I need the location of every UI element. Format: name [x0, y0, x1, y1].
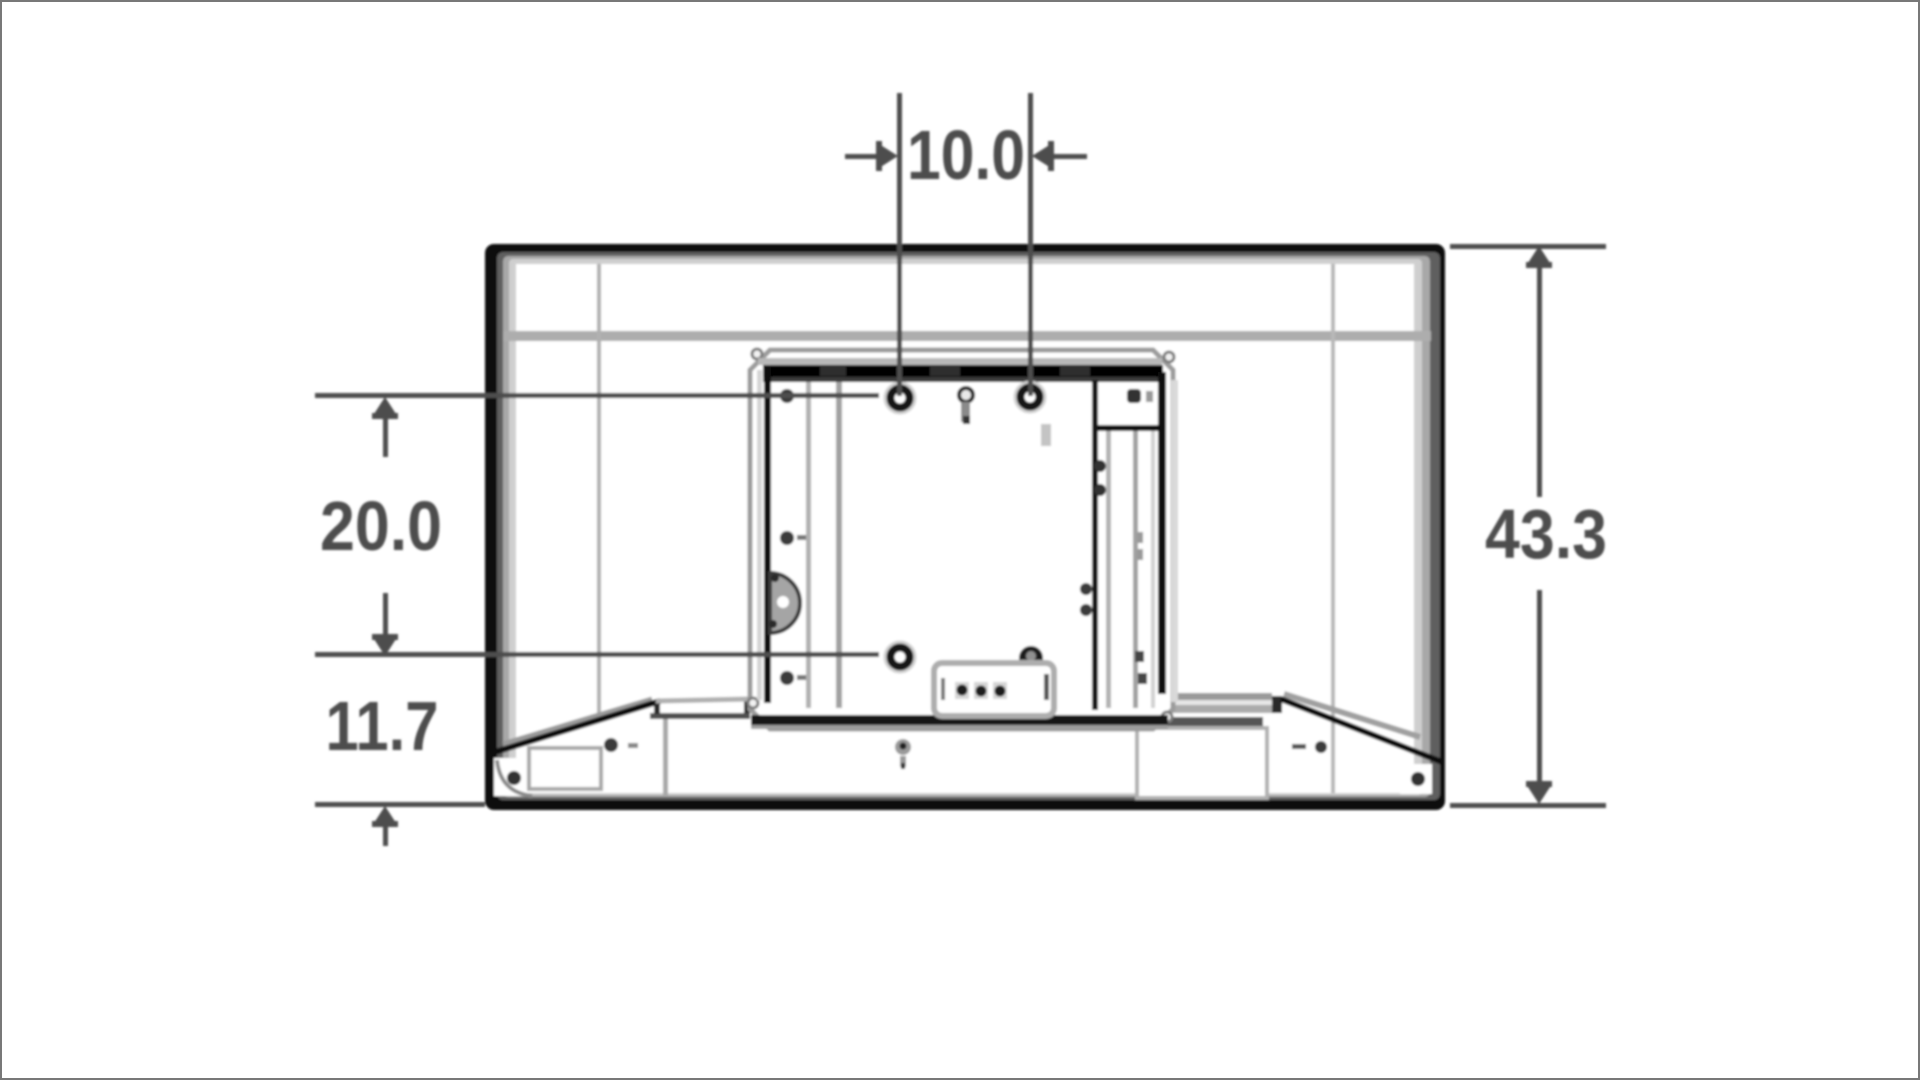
svg-text:20.0: 20.0 [320, 487, 442, 565]
svg-text:10.0: 10.0 [907, 116, 1025, 194]
svg-text:11.7: 11.7 [326, 687, 439, 765]
svg-text:43.3: 43.3 [1485, 495, 1607, 573]
